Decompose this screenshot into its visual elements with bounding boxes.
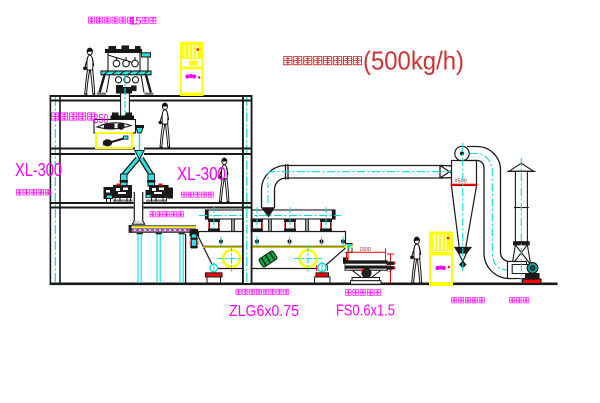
svg-text:XL-300: XL-300 — [177, 164, 226, 184]
svg-text:FS0.6x1.5: FS0.6x1.5 — [336, 303, 395, 320]
svg-text:ZLG6x0.75: ZLG6x0.75 — [229, 303, 299, 320]
svg-text:1.5: 1.5 — [130, 16, 142, 28]
svg-text:1500: 1500 — [360, 247, 371, 253]
svg-text:XL-300: XL-300 — [15, 160, 62, 180]
svg-text:350: 350 — [94, 111, 109, 126]
svg-text:#500: #500 — [455, 179, 467, 185]
svg-text:(500kg/h): (500kg/h) — [363, 46, 464, 76]
